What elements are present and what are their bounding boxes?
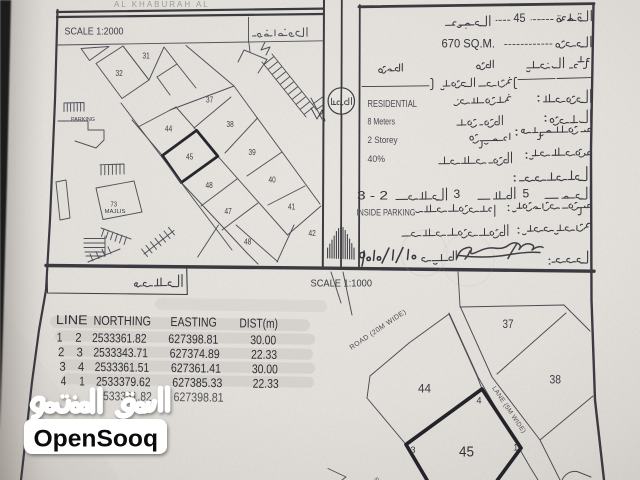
svg-text:627374.89: 627374.89 — [170, 347, 220, 362]
svg-text:AL KHABURAH AL: AL KHABURAH AL — [114, 0, 210, 9]
svg-text:PARKING: PARKING — [71, 117, 95, 123]
svg-text:44: 44 — [418, 382, 431, 396]
svg-text:2 Storey: 2 Storey — [368, 135, 398, 145]
svg-text:EASTING: EASTING — [170, 314, 216, 330]
svg-text:39: 39 — [249, 147, 256, 157]
svg-text:38: 38 — [227, 119, 234, 129]
svg-text:30.00: 30.00 — [250, 333, 276, 347]
svg-text:627361.41: 627361.41 — [171, 361, 221, 376]
svg-text:45: 45 — [514, 13, 526, 25]
svg-text:1: 1 — [57, 331, 63, 345]
svg-text:3 - 2: 3 - 2 — [357, 189, 388, 203]
svg-text:32: 32 — [116, 68, 123, 78]
svg-text:2533361.82: 2533361.82 — [92, 331, 147, 346]
svg-text:5: 5 — [523, 187, 530, 201]
svg-text:2533361.51: 2533361.51 — [95, 360, 150, 375]
svg-text:2: 2 — [58, 345, 64, 359]
svg-text:38: 38 — [550, 373, 562, 387]
svg-text:INSIDE PARKING: INSIDE PARKING — [357, 208, 416, 218]
svg-text:31: 31 — [143, 51, 150, 61]
svg-text:48: 48 — [206, 180, 213, 190]
svg-text:4: 4 — [61, 374, 67, 388]
svg-text:37: 37 — [206, 95, 213, 105]
svg-text:NORTHING: NORTHING — [93, 313, 151, 329]
svg-text:4: 4 — [477, 396, 482, 406]
svg-text:22.33: 22.33 — [251, 348, 277, 362]
svg-text:DIST(m): DIST(m) — [239, 315, 278, 331]
svg-text:OpenSooq: OpenSooq — [34, 426, 159, 453]
svg-text:MAJLIS: MAJLIS — [105, 209, 126, 215]
svg-text:2533343.71: 2533343.71 — [93, 346, 148, 361]
svg-text:4: 4 — [78, 360, 84, 374]
svg-text:8 Meters: 8 Meters — [368, 116, 396, 126]
svg-text:47: 47 — [225, 206, 232, 216]
svg-text:22.33: 22.33 — [253, 377, 279, 391]
svg-text:RESIDENTIAL: RESIDENTIAL — [368, 99, 418, 110]
svg-text:37: 37 — [503, 317, 514, 331]
svg-text:42: 42 — [309, 228, 316, 238]
svg-text:1: 1 — [514, 443, 519, 453]
svg-text:627398.81: 627398.81 — [174, 390, 224, 405]
svg-text:SCALE 1:1000: SCALE 1:1000 — [311, 279, 373, 290]
svg-text:45: 45 — [186, 152, 193, 162]
svg-text:41: 41 — [288, 202, 295, 212]
svg-text:1: 1 — [79, 374, 85, 388]
svg-text:3: 3 — [76, 345, 82, 359]
svg-text:3: 3 — [454, 187, 461, 201]
svg-text:670 SQ.M.: 670 SQ.M. — [442, 37, 496, 51]
svg-text:40%: 40% — [368, 153, 386, 164]
svg-text:44: 44 — [165, 124, 172, 134]
svg-text:627385.33: 627385.33 — [172, 376, 222, 391]
svg-text:73: 73 — [111, 199, 118, 208]
svg-text:3: 3 — [59, 360, 65, 374]
svg-text:2: 2 — [75, 331, 81, 345]
svg-text:627398.81: 627398.81 — [168, 332, 218, 347]
svg-text:SCALE 1:2000: SCALE 1:2000 — [65, 27, 125, 38]
svg-text:30.00: 30.00 — [252, 362, 278, 376]
svg-text:LINE: LINE — [56, 312, 88, 327]
svg-text:40: 40 — [269, 175, 276, 185]
svg-text:45: 45 — [459, 445, 474, 461]
svg-text:2533379.62: 2533379.62 — [96, 375, 151, 390]
svg-text:3: 3 — [411, 445, 416, 455]
